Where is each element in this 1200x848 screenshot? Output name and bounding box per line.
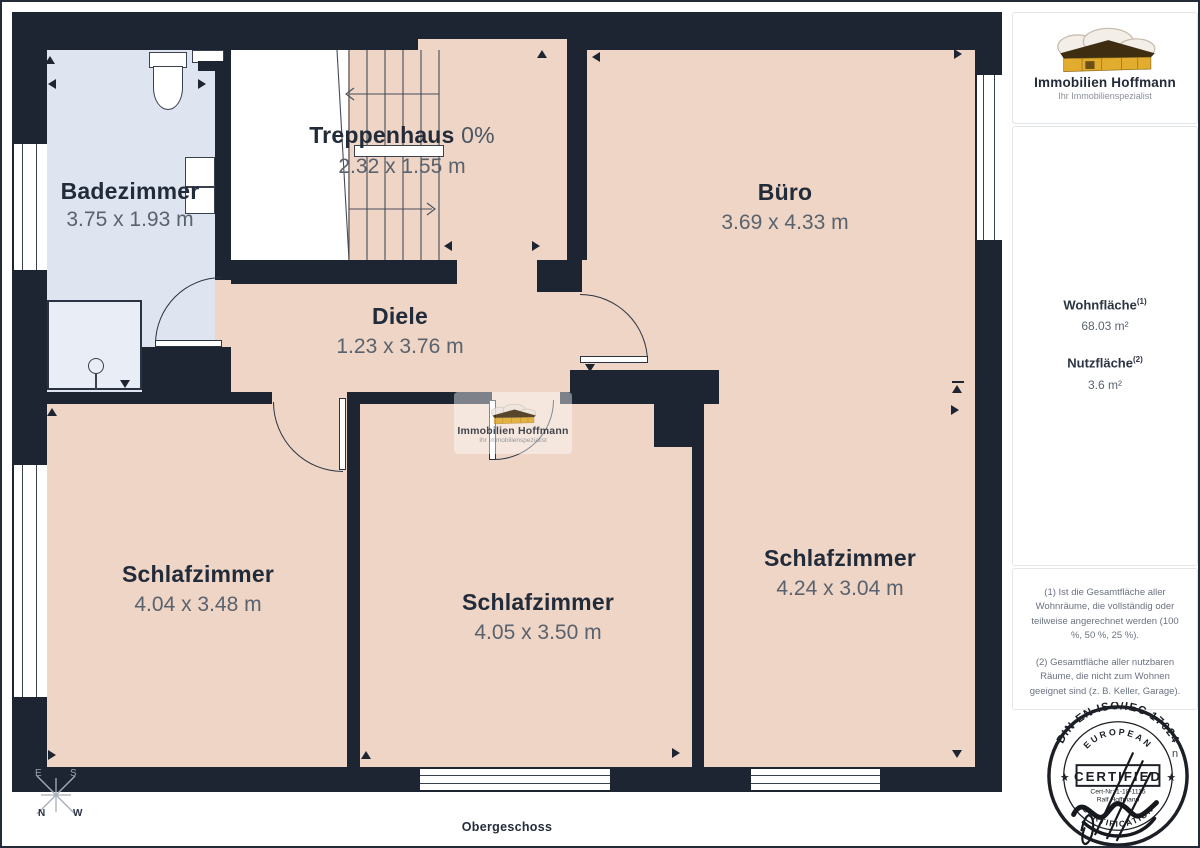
compass-s: S (70, 768, 77, 779)
logo-building-icon (486, 403, 540, 425)
dimension-arrow-icon (951, 405, 959, 415)
room-dims-schlafzimmer-mitte: 4.05 x 3.50 m (474, 621, 601, 645)
logo-title: Immobilien Hoffmann (1034, 75, 1176, 90)
sidebar-logo-box: Immobilien Hoffmann Ihr Immobilienspezia… (1012, 12, 1198, 124)
dimension-arrow-icon (444, 241, 452, 251)
wohnflaeche-sup: (1) (1137, 297, 1147, 306)
room-dims-diele: 1.23 x 3.76 m (336, 335, 463, 359)
certification-stamp: DIN EN ISO/IEC 17024 EUROPEAN CERTIFIED … (1044, 702, 1192, 848)
stamp-star-right-icon: ★ (1166, 772, 1176, 784)
room-dims-buero: 3.69 x 4.33 m (721, 211, 848, 235)
nutzflaeche-sup: (2) (1133, 355, 1143, 364)
dimension-arrow-icon (45, 56, 55, 64)
dimension-arrow-icon (672, 748, 680, 758)
room-dims-schlafzimmer-links: 4.04 x 3.48 m (134, 593, 261, 617)
watermark-logo: Immobilien Hoffmann Ihr Immobilienspezia… (454, 392, 572, 454)
room-label-schlafzimmer-rechts: Schlafzimmer (764, 545, 916, 572)
door-leaf (155, 340, 222, 347)
sidebar-footnote-box: (1) Ist die Gesamtfläche aller Wohnräume… (1012, 568, 1198, 710)
nutzflaeche-value: 3.6 m² (1013, 378, 1197, 392)
room-dims-schlafzimmer-rechts: 4.24 x 3.04 m (776, 577, 903, 601)
compass-w: W (73, 808, 82, 819)
door-leaf (339, 398, 346, 470)
door-leaf (580, 356, 648, 363)
dimension-arrow-icon (198, 79, 206, 89)
stamp-stray-char: n (1172, 748, 1178, 760)
dimension-arrow-icon (952, 381, 964, 383)
sidebar-area-box: Wohnfläche(1) 68.03 m² Nutzfläche(2) 3.6… (1012, 126, 1198, 566)
dimension-arrow-icon (952, 750, 962, 758)
footnote-2: (2) Gesamtfläche aller nutzbaren Räume, … (1026, 656, 1184, 699)
dimension-arrow-icon (47, 408, 57, 416)
logo-building-icon (1046, 27, 1164, 73)
room-label-buero: Büro (758, 179, 812, 206)
nutzflaeche-label: Nutzfläche(2) (1013, 355, 1197, 370)
dimension-arrow-icon (952, 385, 962, 393)
stamp-star-left-icon: ★ (1060, 772, 1070, 784)
treppenhaus-percent: 0% (461, 122, 495, 148)
dimension-arrow-icon (48, 79, 56, 89)
watermark-title: Immobilien Hoffmann (457, 425, 568, 437)
footnote-1: (1) Ist die Gesamtfläche aller Wohnräume… (1026, 586, 1184, 643)
dimension-arrow-icon (592, 52, 600, 62)
dimension-arrow-icon (537, 50, 547, 58)
dimension-arrow-icon (48, 750, 56, 760)
floor-title: Obergeschoss (12, 820, 1002, 834)
logo-subtitle: Ihr Immobilienspezialist (1058, 91, 1152, 101)
compass-n: N (38, 808, 45, 819)
svg-text:EUROPEAN: EUROPEAN (1081, 727, 1154, 751)
shower-icon (47, 300, 142, 390)
dimension-arrow-icon (120, 380, 130, 388)
stamp-cert-nr: Cert-Nr: 1-18-1115 (1090, 789, 1145, 796)
wohnflaeche-label: Wohnfläche(1) (1013, 297, 1197, 312)
toilet-icon (153, 66, 183, 110)
wohnflaeche-value: 68.03 m² (1013, 319, 1197, 333)
room-label-badezimmer: Badezimmer (61, 178, 200, 205)
room-label-schlafzimmer-mitte: Schlafzimmer (462, 589, 614, 616)
floorplan-page: Immobilien Hoffmann Ihr Immobilienspezia… (0, 0, 1200, 848)
dimension-arrow-icon (954, 49, 962, 59)
dimension-arrow-icon (361, 751, 371, 759)
room-label-diele: Diele (372, 303, 428, 330)
dimension-arrow-icon (585, 364, 595, 372)
compass-e: E (35, 768, 42, 779)
stamp-arc-european: EUROPEAN (1081, 727, 1154, 751)
room-dims-badezimmer: 3.75 x 1.93 m (66, 208, 193, 232)
room-label-schlafzimmer-links: Schlafzimmer (122, 561, 274, 588)
floorplan: Immobilien Hoffmann Ihr Immobilienspezia… (2, 2, 1012, 848)
room-label-treppenhaus: Treppenhaus 0% (309, 122, 495, 149)
dimension-arrow-icon (532, 241, 540, 251)
room-dims-treppenhaus: 2.32 x 1.55 m (338, 155, 465, 179)
compass: E S N W (17, 762, 97, 826)
compass-rose-icon (17, 762, 97, 826)
watermark-subtitle: Ihr Immobilienspezialist (479, 437, 547, 444)
